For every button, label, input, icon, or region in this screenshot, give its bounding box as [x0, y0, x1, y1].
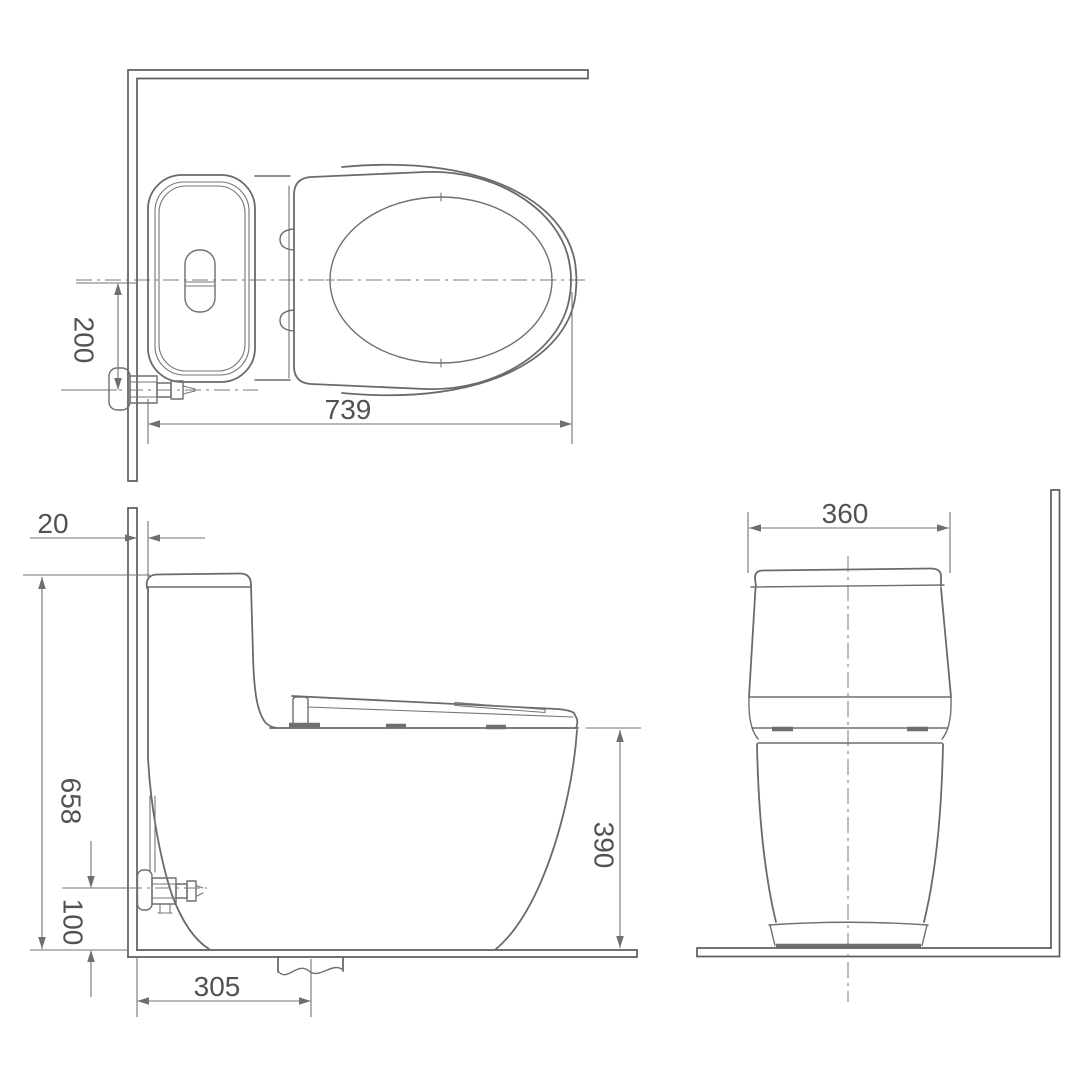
side-dim-658: 658	[23, 575, 150, 950]
side-seat-hinge	[293, 697, 308, 726]
front-tank-sides	[749, 588, 951, 697]
plan-flush-button-divider	[185, 282, 215, 286]
side-dim-20: 20	[30, 508, 205, 577]
toilet-dimension-drawing: 200 739	[0, 0, 1090, 1090]
front-wall-lines	[1051, 490, 1060, 957]
dim-label-center-to-inlet: 200	[69, 317, 100, 364]
plan-tank-rim-inner	[159, 186, 245, 371]
side-valve-flange	[138, 870, 153, 910]
plan-hinge-right	[280, 310, 294, 331]
side-tank-cap	[147, 574, 251, 589]
dim-label-wall-clearance: 20	[37, 508, 68, 539]
side-valve-nut	[187, 881, 196, 901]
side-dim-390: 390	[586, 728, 641, 948]
front-dim-360: 360	[748, 498, 950, 573]
side-floor-lines	[128, 950, 637, 957]
plan-dim-200: 200	[61, 283, 136, 390]
technical-drawing-page: 200 739	[0, 0, 1090, 1090]
front-tank-cap-lip	[751, 585, 944, 587]
front-base-step	[769, 922, 928, 925]
plan-supply-valve	[109, 368, 195, 410]
plan-view: 200 739	[61, 70, 590, 481]
dim-label-drain-set-out: 305	[194, 971, 241, 1002]
front-floor-lines	[697, 948, 1060, 957]
dim-label-overall-height: 658	[56, 778, 87, 825]
plan-dim-739: 739	[148, 292, 572, 444]
dim-label-rim-height: 390	[589, 822, 620, 869]
side-bowl-front-pedestal	[496, 730, 577, 949]
front-seat-ears	[749, 698, 951, 739]
front-body-sides	[757, 744, 943, 922]
plan-tank-rim-outer	[155, 182, 249, 375]
side-seat-bumpers	[289, 725, 506, 727]
side-tank-front-edge	[251, 585, 277, 728]
side-view: 20 658 100 390 305	[23, 508, 641, 1017]
side-dim-305: 305	[137, 958, 311, 1017]
plan-tank-outer	[148, 175, 255, 382]
dim-label-tank-width: 360	[822, 498, 869, 529]
dim-label-overall-length: 739	[325, 394, 372, 425]
plan-valve-flange	[109, 368, 130, 410]
side-valve-tip	[196, 886, 203, 897]
side-valve-drip	[158, 904, 172, 913]
front-view: 360	[697, 490, 1060, 1002]
plan-hinge-left	[280, 229, 294, 250]
plan-flush-button	[185, 250, 215, 312]
side-dim-100: 100	[58, 841, 129, 997]
dim-label-inlet-height: 100	[58, 899, 89, 946]
side-valve-body	[152, 878, 176, 904]
plan-bowl-side-edges	[255, 176, 290, 380]
side-valve-spout	[176, 884, 187, 898]
